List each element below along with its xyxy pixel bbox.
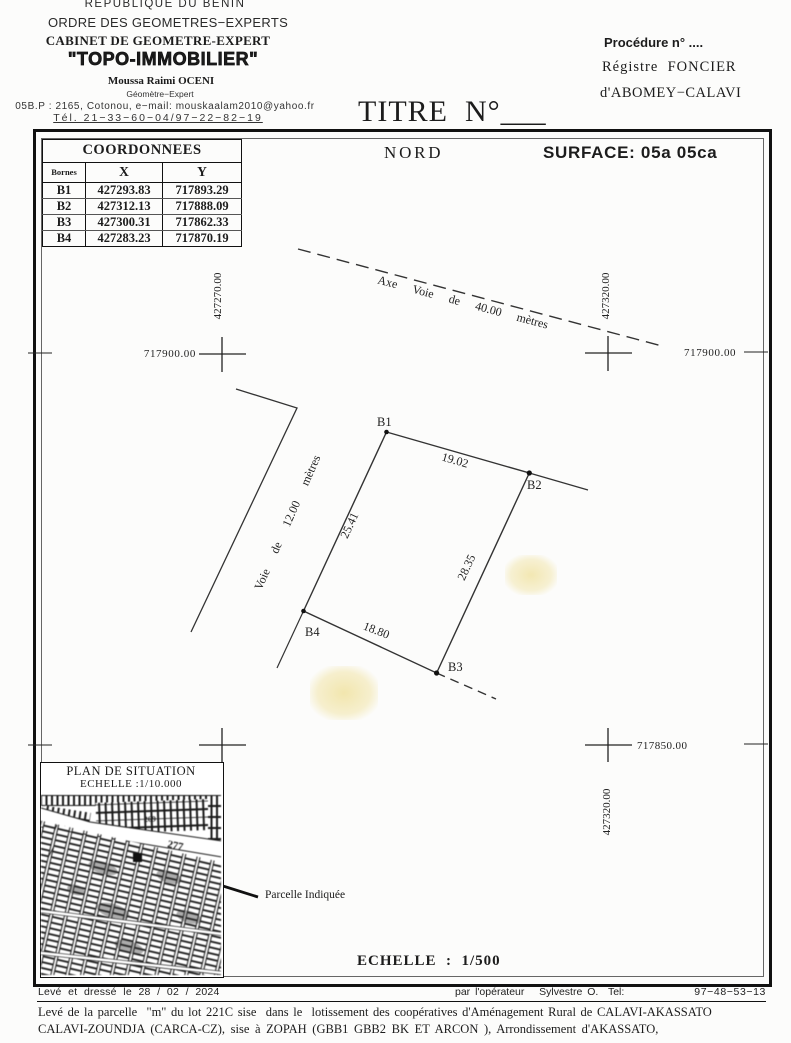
svg-text:717900.00: 717900.00 [144, 348, 196, 360]
svg-text:427320.00: 427320.00 [601, 788, 613, 835]
svg-text:Voie de 12.00 mètres: Voie de 12.00 mètres [251, 452, 323, 591]
svg-text:19.02: 19.02 [440, 450, 470, 471]
svg-text:25.41: 25.41 [337, 510, 361, 540]
svg-text:B4: B4 [305, 625, 320, 639]
svg-text:B2: B2 [527, 478, 542, 492]
svg-text:18.80: 18.80 [361, 619, 391, 642]
svg-text:717900.00: 717900.00 [684, 347, 736, 359]
svg-text:427320.00: 427320.00 [600, 272, 612, 319]
svg-text:Axe Voie de 40.00 mètres: Axe Voie de 40.00 mètres [376, 273, 550, 332]
svg-text:717850.00: 717850.00 [637, 740, 687, 752]
svg-text:427270.00: 427270.00 [212, 272, 224, 319]
svg-text:B3: B3 [448, 660, 463, 674]
svg-text:269: 269 [144, 814, 156, 824]
svg-text:28.35: 28.35 [454, 552, 478, 582]
svg-text:B1: B1 [377, 415, 392, 429]
